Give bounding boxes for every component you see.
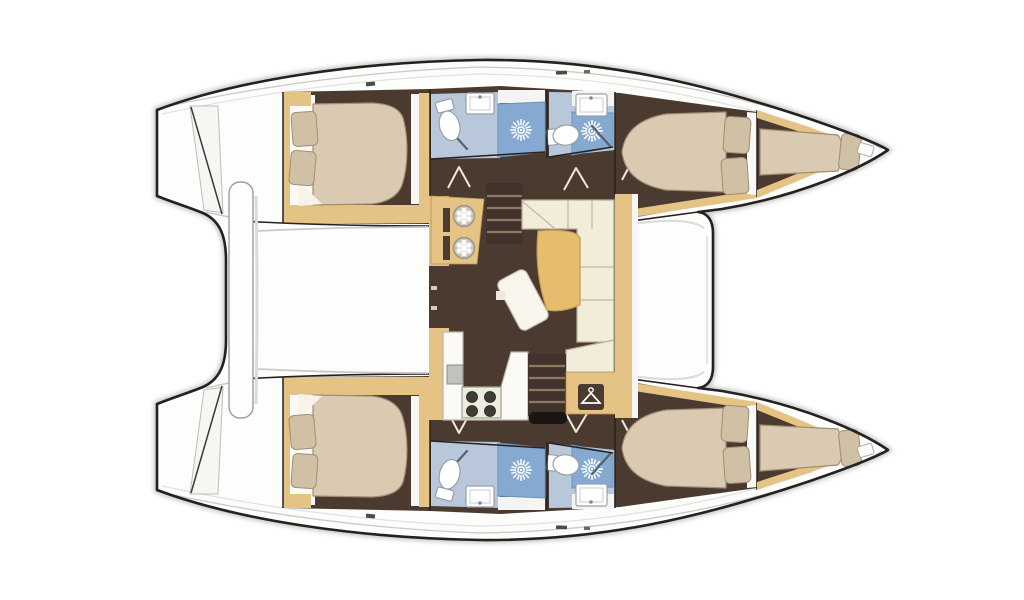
window-sill (632, 194, 638, 418)
saloon-forward-wall (615, 194, 632, 418)
burner (485, 406, 496, 417)
instrument-slot (443, 236, 450, 260)
galley-sink (447, 365, 463, 384)
burner (467, 406, 478, 417)
catamaran-floor-plan (0, 0, 1024, 600)
floor-plan-canvas (0, 0, 1024, 600)
instrument-slot (443, 208, 450, 232)
nav-station (431, 196, 484, 264)
table-leg (496, 291, 505, 300)
saloon-table (537, 230, 580, 311)
wardrobe (566, 372, 617, 414)
bench-shadow (256, 196, 257, 404)
stove (462, 387, 501, 418)
port-companionway-steps (486, 183, 523, 244)
door-handle (431, 286, 437, 290)
step-handrail (529, 412, 567, 424)
starboard-companionway-steps (528, 354, 567, 424)
door-handle (431, 306, 437, 310)
burner (485, 392, 496, 403)
galley-cabinet (429, 330, 444, 420)
cockpit-bench (229, 182, 253, 418)
burner (467, 392, 478, 403)
